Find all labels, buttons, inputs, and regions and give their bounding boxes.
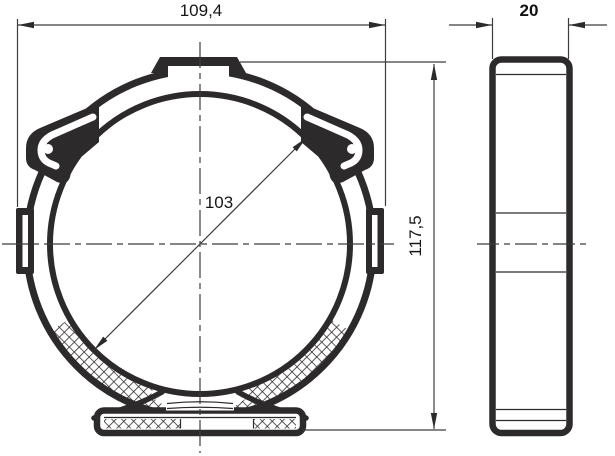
arrowhead-right xyxy=(369,22,385,28)
rubber-hatch-gap-right xyxy=(247,321,347,407)
rubber-hatch-gap-left xyxy=(52,321,152,407)
arrowhead-left xyxy=(18,22,34,28)
latch-hook-left-notch xyxy=(43,144,53,154)
dimension-outer-width-value: 109,4 xyxy=(180,1,223,20)
side-view xyxy=(493,60,570,434)
latch-hook-right xyxy=(301,103,374,183)
dimension-overall-height-value: 117,5 xyxy=(406,215,425,256)
side-lug-left-slot xyxy=(23,215,29,267)
arrowhead-right xyxy=(569,22,585,28)
arrowhead-bottom xyxy=(431,413,437,429)
latch-hook-right-body xyxy=(301,103,374,183)
latch-hook-right-notch xyxy=(347,144,357,154)
arrowhead-top xyxy=(431,64,437,80)
side-lug-right-slot xyxy=(372,215,378,267)
dimension-depth: 20 xyxy=(449,1,607,59)
foot-base-window xyxy=(180,419,254,430)
side-lug-left xyxy=(16,208,34,274)
technical-drawing-page: 109,4 20 103 117,5 xyxy=(0,0,615,456)
side-lug-right xyxy=(366,208,384,274)
latch-hook-left-body xyxy=(26,103,99,183)
arrowhead-left xyxy=(476,22,492,28)
technical-drawing-canvas: 109,4 20 103 117,5 xyxy=(0,0,615,456)
dimension-inner-diameter-value: 103 xyxy=(205,193,233,212)
top-boss-gap xyxy=(168,66,229,78)
side-view-outline xyxy=(493,60,570,434)
latch-hook-left xyxy=(26,103,99,183)
dimension-depth-value: 20 xyxy=(520,1,539,20)
